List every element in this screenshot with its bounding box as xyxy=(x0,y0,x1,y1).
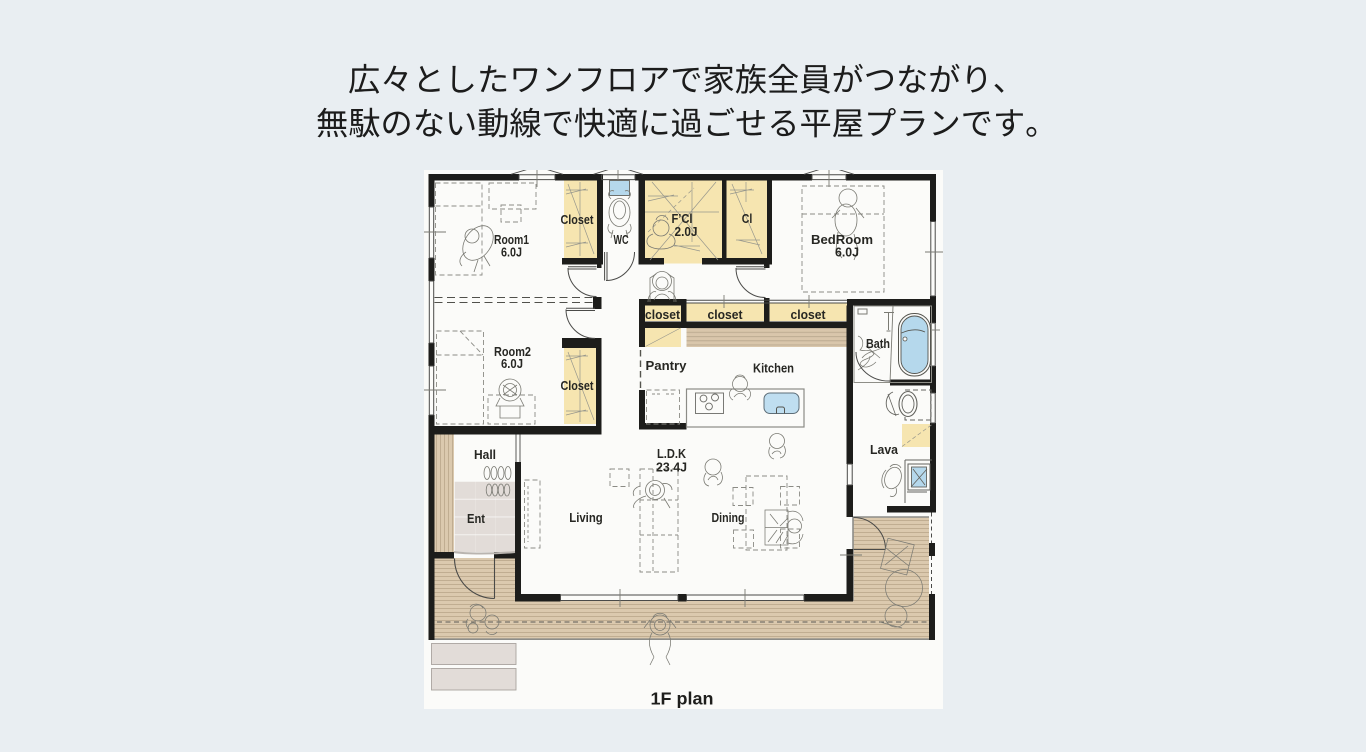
svg-text:2.0J: 2.0J xyxy=(675,224,698,239)
svg-text:Lava: Lava xyxy=(870,442,899,457)
svg-text:closet: closet xyxy=(645,307,681,322)
svg-text:Dining: Dining xyxy=(712,510,745,525)
svg-text:Pantry: Pantry xyxy=(646,358,688,373)
svg-text:6.0J: 6.0J xyxy=(501,245,522,260)
svg-text:Ent: Ent xyxy=(467,511,486,526)
svg-text:Bath: Bath xyxy=(866,336,890,351)
svg-text:23.4J: 23.4J xyxy=(656,460,687,475)
svg-text:Living: Living xyxy=(569,510,603,525)
svg-text:WC: WC xyxy=(614,232,629,247)
svg-text:6.0J: 6.0J xyxy=(501,356,523,371)
svg-text:Cl: Cl xyxy=(742,211,753,226)
svg-text:Kitchen: Kitchen xyxy=(753,361,794,376)
svg-text:6.0J: 6.0J xyxy=(835,245,859,260)
svg-text:1F plan: 1F plan xyxy=(651,689,714,709)
svg-text:Hall: Hall xyxy=(474,447,496,462)
svg-text:Closet: Closet xyxy=(561,378,595,393)
svg-text:closet: closet xyxy=(791,307,827,322)
svg-text:closet: closet xyxy=(708,307,744,322)
svg-text:Closet: Closet xyxy=(561,212,595,227)
